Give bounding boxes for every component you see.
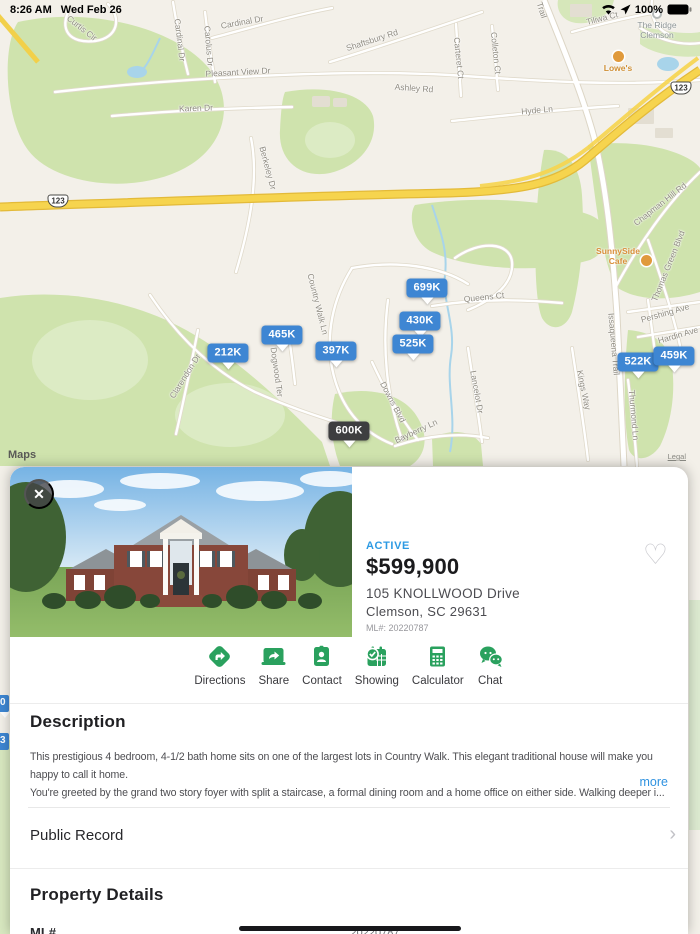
home-indicator[interactable] xyxy=(239,926,461,932)
pin-pointer xyxy=(330,361,342,368)
close-icon: ✕ xyxy=(33,486,45,503)
description-line: This prestigious 4 bedroom, 4-1/2 bath h… xyxy=(30,748,668,784)
public-record-row[interactable]: Public Record › xyxy=(10,819,688,853)
calculator-button[interactable]: Calculator xyxy=(412,643,464,687)
directions-icon xyxy=(206,643,233,670)
heart-icon: ♡ xyxy=(643,538,668,571)
chat-button[interactable]: Chat xyxy=(477,643,504,687)
action-label: Share xyxy=(258,675,289,687)
description-heading: Description xyxy=(30,712,126,732)
action-label: Showing xyxy=(355,675,399,687)
action-label: Contact xyxy=(302,675,342,687)
divider xyxy=(10,868,688,869)
contact-icon xyxy=(308,643,335,670)
pin-pointer xyxy=(421,298,433,305)
pin-pointer xyxy=(407,354,419,361)
share-icon xyxy=(260,643,287,670)
pin-pointer xyxy=(276,345,288,352)
legal-link[interactable]: Legal xyxy=(668,452,686,461)
price-pin-label: 459K xyxy=(660,350,687,362)
property-photo[interactable]: ✕ xyxy=(10,467,352,637)
listing-city-state-zip: Clemson, SC 29631 xyxy=(366,604,487,619)
price-pin[interactable]: 459K xyxy=(653,347,694,366)
price-pin[interactable]: 699K xyxy=(406,279,447,298)
pin-pointer xyxy=(668,366,680,373)
public-record-label: Public Record xyxy=(30,827,123,844)
contact-button[interactable]: Contact xyxy=(302,643,342,687)
price-pin-label: 600K xyxy=(335,425,362,437)
price-pin-label: 212K xyxy=(214,347,241,359)
close-button[interactable]: ✕ xyxy=(24,479,54,509)
property-photo-image xyxy=(10,467,352,637)
property-detail-label: ML# xyxy=(30,925,56,934)
price-pin[interactable]: 465K xyxy=(261,326,302,345)
price-pin-label: 522K xyxy=(624,356,651,368)
listing-mls-number: ML#: 20220787 xyxy=(366,623,429,633)
chevron-right-icon: › xyxy=(669,823,676,846)
price-pin[interactable]: 522K xyxy=(617,353,658,372)
directions-button[interactable]: Directions xyxy=(194,643,245,687)
property-details-heading: Property Details xyxy=(30,885,164,905)
price-pin-clipped[interactable]: 3 xyxy=(0,733,9,750)
listing-address: 105 KNOLLWOOD Drive xyxy=(366,586,520,601)
action-bar: Directions Share Contact Showing Calcula… xyxy=(10,643,688,687)
description-line: You're greeted by the grand two story fo… xyxy=(30,784,668,802)
maps-attribution: Maps xyxy=(8,449,36,461)
action-label: Calculator xyxy=(412,675,464,687)
description-text: This prestigious 4 bedroom, 4-1/2 bath h… xyxy=(30,748,668,802)
price-pin-label: 465K xyxy=(268,329,295,341)
calculator-icon xyxy=(424,643,451,670)
price-pin-label: 397K xyxy=(322,345,349,357)
price-pin[interactable]: 397K xyxy=(315,342,356,361)
status-badge: ACTIVE xyxy=(366,540,410,552)
price-pin[interactable]: 525K xyxy=(392,335,433,354)
price-pin[interactable]: 430K xyxy=(399,312,440,331)
action-label: Chat xyxy=(478,675,502,687)
divider xyxy=(28,807,670,808)
price-pin-clipped[interactable]: 0 xyxy=(0,695,9,712)
favorite-button[interactable]: ♡ xyxy=(643,541,668,569)
price-pin-label: 699K xyxy=(413,282,440,294)
price-pin[interactable]: 212K xyxy=(207,344,248,363)
listing-detail-sheet: ✕ ACTIVE $599,900 105 KNOLLWOOD Drive Cl… xyxy=(10,467,688,934)
more-link[interactable]: more xyxy=(640,775,668,789)
pin-pointer xyxy=(343,441,355,448)
pin-pointer xyxy=(222,363,234,370)
share-button[interactable]: Share xyxy=(258,643,289,687)
price-pin[interactable]: 600K xyxy=(328,422,369,441)
showing-icon xyxy=(363,643,390,670)
showing-button[interactable]: Showing xyxy=(355,643,399,687)
listing-price: $599,900 xyxy=(366,554,459,580)
price-pin-label: 525K xyxy=(399,338,426,350)
action-label: Directions xyxy=(194,675,245,687)
chat-icon xyxy=(477,643,504,670)
pin-pointer xyxy=(0,712,10,723)
listing-summary: ACTIVE $599,900 105 KNOLLWOOD Drive Clem… xyxy=(366,467,688,637)
price-pin-label: 430K xyxy=(406,315,433,327)
pin-pointer xyxy=(632,372,644,379)
divider xyxy=(10,703,688,704)
